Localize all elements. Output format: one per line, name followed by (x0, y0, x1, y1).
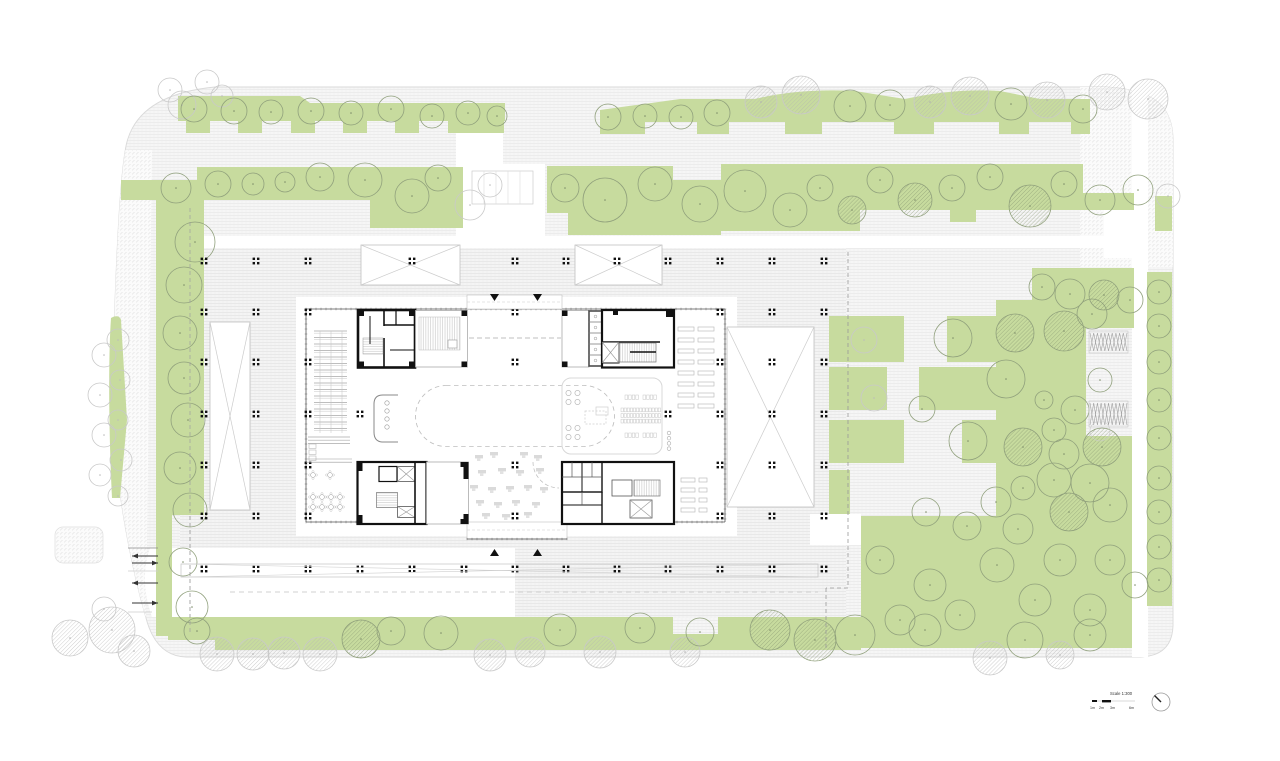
svg-text:2m: 2m (1099, 706, 1104, 710)
svg-text:1m: 1m (1090, 706, 1095, 710)
svg-text:Scale 1:300: Scale 1:300 (1110, 691, 1133, 696)
svg-text:3m: 3m (1110, 706, 1115, 710)
svg-text:6m: 6m (1129, 706, 1134, 710)
